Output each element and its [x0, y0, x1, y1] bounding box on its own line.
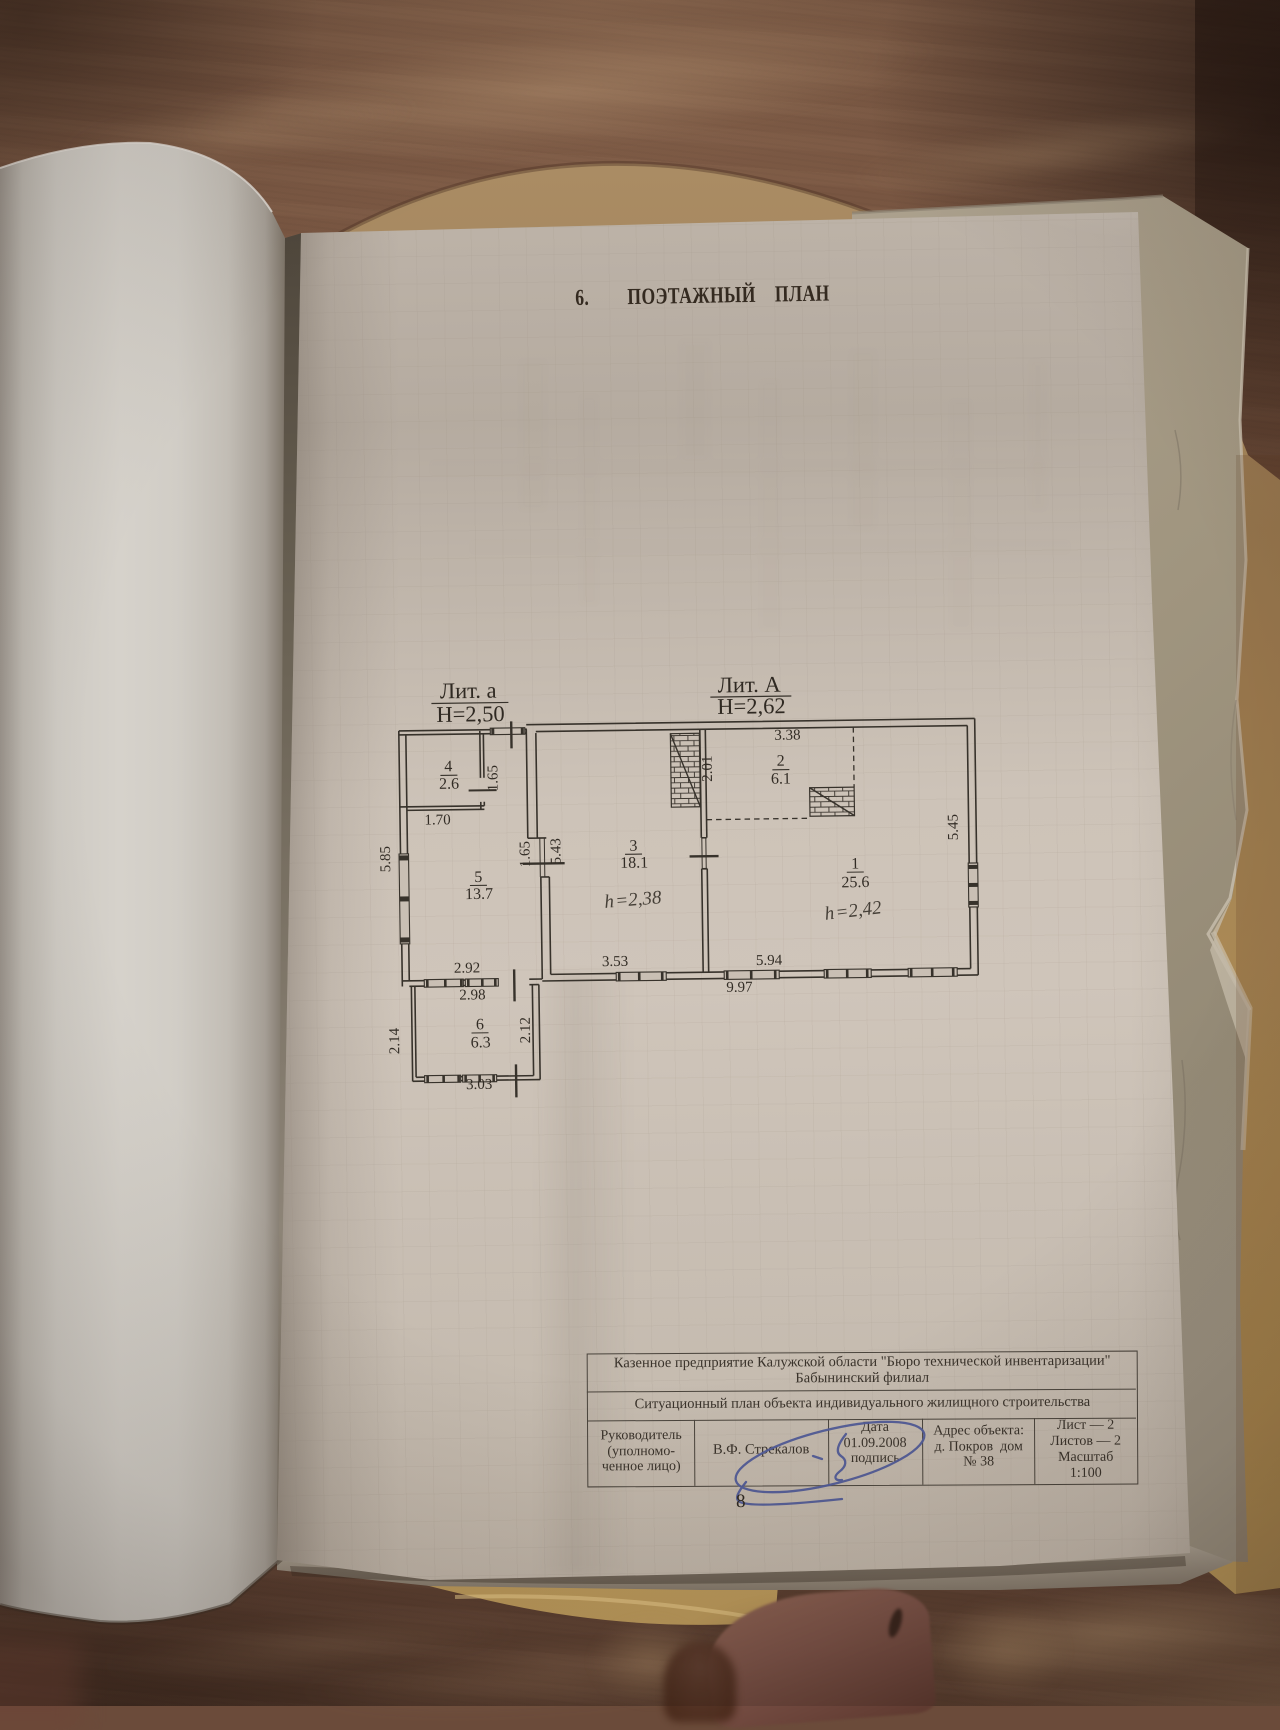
svg-text:5.85: 5.85	[378, 846, 394, 872]
svg-text:Лит. а: Лит. а	[440, 678, 497, 704]
svg-text:h =2,38: h =2,38	[603, 887, 662, 913]
svg-text:2: 2	[777, 753, 785, 770]
svg-text:6.3: 6.3	[471, 1034, 491, 1051]
svg-text:2.92: 2.92	[454, 960, 480, 976]
svg-text:1.70: 1.70	[424, 812, 450, 828]
svg-text:13.7: 13.7	[465, 886, 493, 903]
svg-text:5.94: 5.94	[756, 953, 783, 969]
svg-text:4: 4	[444, 758, 452, 775]
svg-text:5.43: 5.43	[548, 838, 564, 864]
svg-text:Н=2,50: Н=2,50	[436, 701, 505, 727]
svg-text:2.98: 2.98	[459, 987, 485, 1003]
svg-text:5.45: 5.45	[946, 814, 962, 840]
svg-text:2.12: 2.12	[518, 1017, 534, 1043]
svg-text:1.65: 1.65	[517, 841, 533, 867]
svg-text:3.38: 3.38	[774, 727, 800, 743]
svg-text:3: 3	[629, 838, 637, 855]
svg-text:6: 6	[476, 1016, 484, 1033]
svg-text:6.1: 6.1	[771, 771, 791, 788]
svg-text:3.53: 3.53	[602, 954, 628, 970]
svg-text:h =2,42: h =2,42	[823, 897, 883, 925]
svg-text:25.6: 25.6	[841, 874, 869, 891]
svg-text:1.65: 1.65	[485, 765, 501, 791]
svg-text:18.1: 18.1	[620, 855, 648, 872]
svg-text:5: 5	[474, 869, 482, 886]
svg-text:2.14: 2.14	[387, 1027, 403, 1054]
svg-text:1: 1	[851, 856, 859, 873]
svg-text:2.6: 2.6	[439, 776, 459, 793]
svg-text:2.01: 2.01	[700, 755, 716, 781]
svg-text:3.03: 3.03	[466, 1077, 492, 1093]
svg-text:9.97: 9.97	[726, 980, 753, 996]
